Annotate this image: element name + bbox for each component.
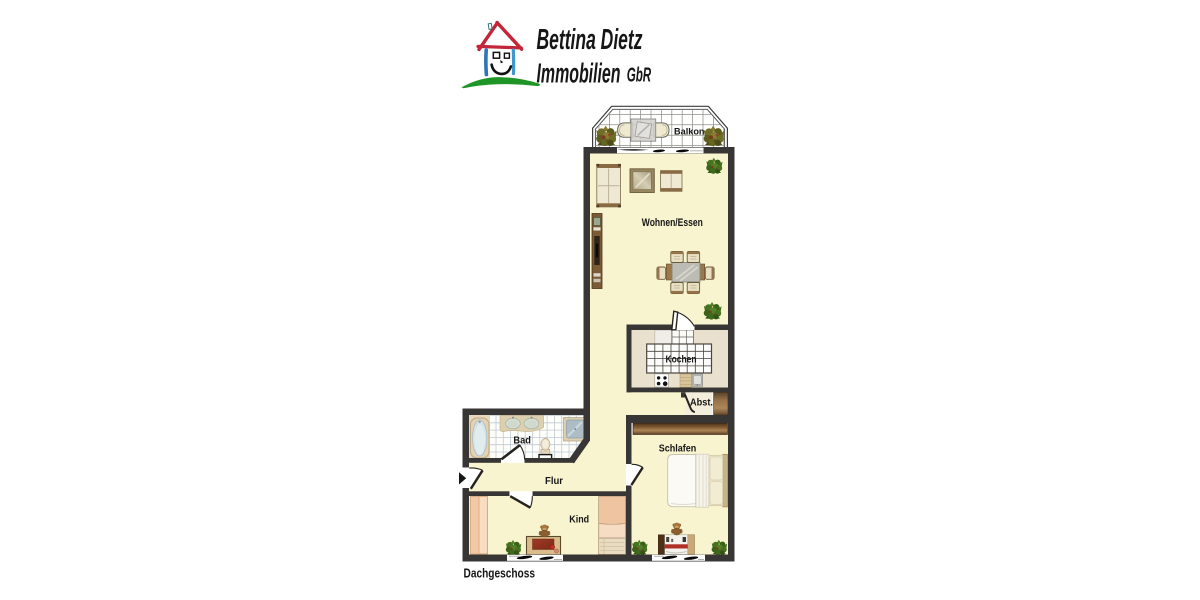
svg-text:GbR: GbR (627, 65, 652, 87)
svg-text:Schlafen: Schlafen (659, 444, 697, 455)
svg-text:Wohnen/Essen: Wohnen/Essen (642, 217, 703, 229)
svg-text:Kochen: Kochen (666, 353, 697, 365)
svg-text:Flur: Flur (545, 476, 563, 487)
svg-text:Bettina Dietz: Bettina Dietz (537, 24, 643, 56)
svg-text:Kind: Kind (569, 513, 589, 525)
svg-text:Abst.: Abst. (690, 398, 713, 409)
svg-text:Balkon: Balkon (674, 126, 705, 137)
svg-text:Dachgeschoss: Dachgeschoss (464, 566, 536, 581)
svg-text:Immobilien: Immobilien (537, 57, 621, 88)
svg-text:Bad: Bad (513, 434, 531, 446)
